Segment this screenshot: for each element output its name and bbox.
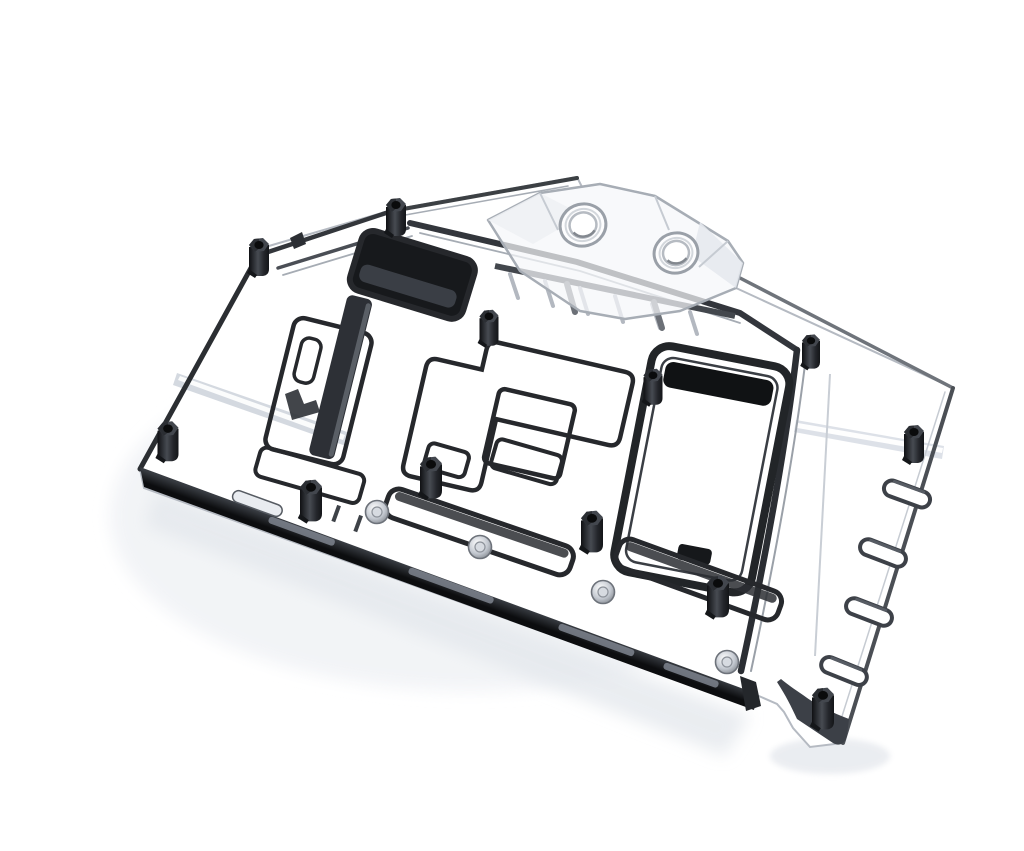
product-photo: Transparent acrylic full-cover GPU water… <box>40 16 1024 835</box>
standoff <box>642 369 663 407</box>
standoff <box>298 480 322 524</box>
standoff <box>810 688 834 732</box>
silver-screw <box>366 501 389 524</box>
silver-screw <box>716 651 739 674</box>
standoff <box>902 425 924 465</box>
standoff <box>384 198 406 238</box>
standoff <box>247 238 269 278</box>
silver-screw <box>469 536 492 559</box>
standoff <box>478 310 499 348</box>
standoff <box>155 421 178 463</box>
standoff <box>418 457 442 501</box>
standoff <box>705 576 729 620</box>
silver-screw <box>592 581 615 604</box>
waterblock-illustration: Transparent acrylic full-cover GPU water… <box>40 16 1024 835</box>
standoff <box>579 511 603 555</box>
standoff <box>800 334 820 370</box>
